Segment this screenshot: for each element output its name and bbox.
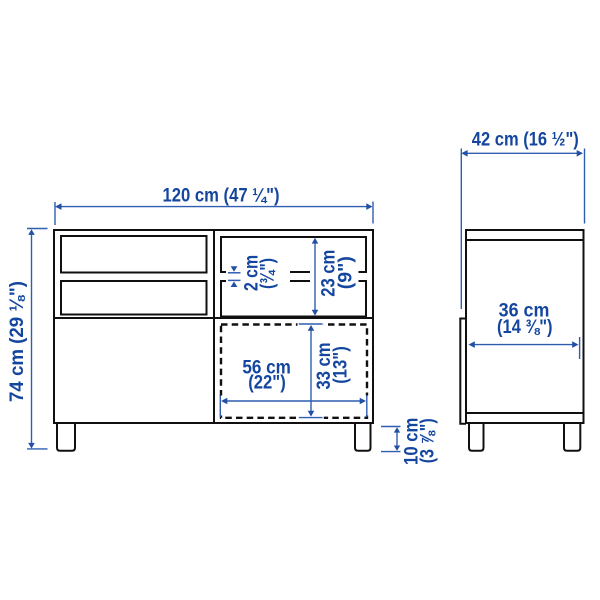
svg-text:(9"): (9") [336,256,357,289]
svg-text:42 cm (16 ½"): 42 cm (16 ½") [472,130,579,151]
svg-text:(13"): (13") [331,346,352,384]
svg-text:(¾"): (¾") [258,258,279,289]
svg-text:(22"): (22") [248,373,286,394]
svg-text:120 cm (47 ¼"): 120 cm (47 ¼") [163,185,280,206]
svg-text:(3 ⅞"): (3 ⅞") [418,418,439,463]
svg-text:74 cm (29 ⅛"): 74 cm (29 ⅛") [7,281,28,402]
svg-text:(14 ⅜"): (14 ⅜") [497,317,553,338]
